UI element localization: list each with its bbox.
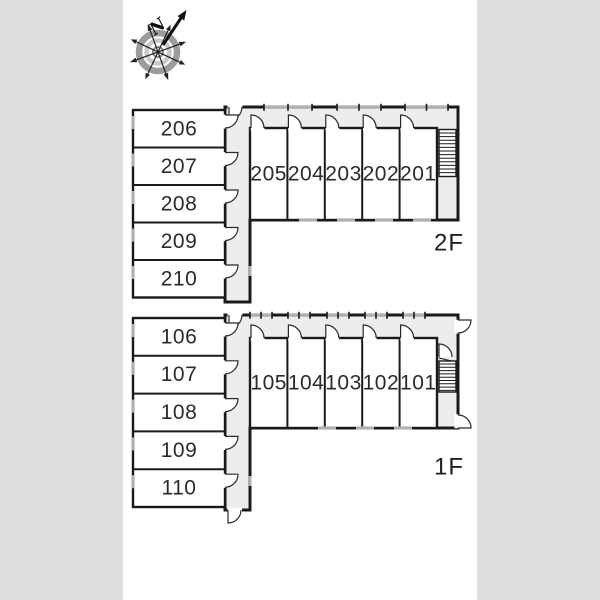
room-label: 108 bbox=[161, 401, 198, 424]
room-label: 206 bbox=[161, 117, 198, 140]
room-label: 103 bbox=[325, 372, 362, 395]
window-mark bbox=[132, 437, 135, 450]
window-mark bbox=[132, 324, 135, 337]
room-label: 109 bbox=[161, 439, 198, 462]
window-mark bbox=[413, 218, 431, 221]
window-mark bbox=[132, 400, 135, 413]
window-mark bbox=[132, 191, 135, 204]
room-label: 203 bbox=[325, 163, 362, 186]
window-mark bbox=[249, 266, 252, 276]
floor-label-2f: 2F bbox=[434, 230, 464, 257]
room-label: 205 bbox=[250, 163, 287, 186]
room-label: 204 bbox=[288, 163, 325, 186]
window-mark bbox=[249, 476, 252, 486]
window-mark bbox=[132, 154, 135, 167]
room-label: 207 bbox=[161, 155, 198, 178]
window-mark bbox=[394, 426, 412, 429]
floor-label-1f: 1F bbox=[434, 454, 464, 481]
room-label: 201 bbox=[400, 163, 437, 186]
room-label: 110 bbox=[162, 477, 197, 500]
window-mark bbox=[132, 475, 135, 488]
window-mark bbox=[318, 426, 336, 429]
window-mark bbox=[356, 426, 374, 429]
room-label: 210 bbox=[161, 267, 198, 290]
compass-rose: N bbox=[123, 10, 196, 90]
entrance-door-arc-icon bbox=[458, 320, 471, 333]
floor-plan-canvas: N bbox=[0, 0, 600, 600]
room-label: 107 bbox=[161, 363, 198, 386]
entrance-door-arc-icon bbox=[228, 510, 241, 523]
window-mark bbox=[375, 218, 393, 221]
floor-plan-1f: 106 107 108 109 110 105 104 103 102 101 … bbox=[123, 306, 480, 536]
room-label: 105 bbox=[250, 372, 287, 395]
windows-south-wall-1f bbox=[318, 426, 412, 429]
window-mark bbox=[299, 218, 317, 221]
window-mark bbox=[337, 218, 355, 221]
compass-north-icon: N bbox=[123, 0, 223, 98]
room-label: 101 bbox=[400, 372, 437, 395]
room-label: 104 bbox=[288, 372, 325, 395]
window-mark bbox=[132, 266, 135, 279]
room-label: 202 bbox=[363, 163, 400, 186]
room-label: 209 bbox=[161, 230, 198, 253]
room-label: 208 bbox=[161, 192, 198, 215]
window-mark bbox=[132, 362, 135, 375]
room-label: 106 bbox=[161, 325, 198, 348]
window-mark bbox=[132, 116, 135, 129]
floor-plan-2f: 206 207 208 209 210 205 204 203 202 201 … bbox=[123, 98, 480, 313]
window-mark bbox=[132, 229, 135, 242]
entrance-door-arc-icon bbox=[458, 415, 471, 428]
staircase-icon-2f bbox=[439, 130, 456, 177]
room-label: 102 bbox=[363, 372, 400, 395]
